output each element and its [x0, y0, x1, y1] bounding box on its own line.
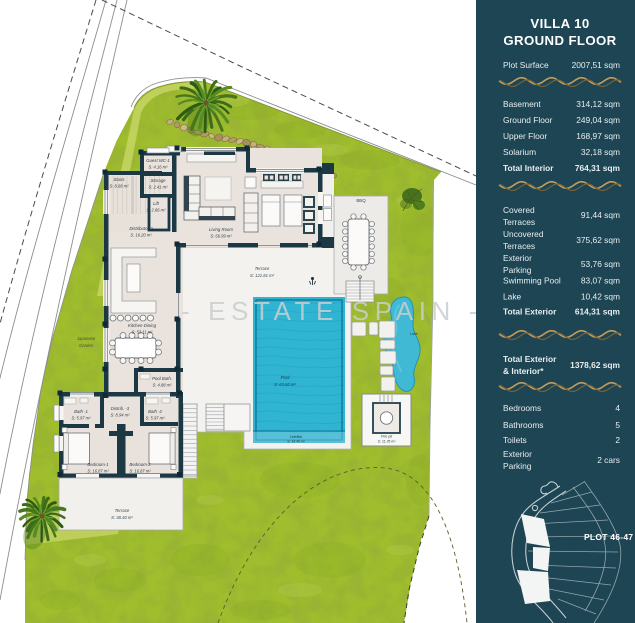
svg-text:VILLA 10: VILLA 10: [530, 16, 589, 31]
svg-text:S: 2.41 m²: S: 2.41 m²: [149, 185, 169, 190]
svg-text:S: 53.11 m²: S: 53.11 m²: [132, 330, 153, 335]
svg-text:Garden: Garden: [79, 343, 94, 348]
svg-text:Parking: Parking: [503, 461, 532, 471]
svg-text:- ESTATE SPAIN -: - ESTATE SPAIN -: [181, 296, 483, 326]
svg-text:168,97 sqm: 168,97 sqm: [576, 131, 620, 141]
svg-text:Toilets: Toilets: [503, 435, 527, 445]
svg-text:BBQ: BBQ: [356, 198, 366, 203]
svg-text:S: 121.81 m²: S: 121.81 m²: [250, 273, 275, 278]
svg-text:S: 5.97 m²: S: 5.97 m²: [146, 416, 166, 421]
svg-text:S: 63.60 m²: S: 63.60 m²: [274, 382, 296, 387]
svg-text:Living Room: Living Room: [209, 227, 233, 232]
svg-text:Bathrooms: Bathrooms: [503, 420, 544, 430]
svg-text:Terrace: Terrace: [255, 266, 270, 271]
svg-text:PLOT 46-47: PLOT 46-47: [584, 532, 633, 542]
svg-text:Bedrooms: Bedrooms: [503, 403, 541, 413]
svg-text:S: 5.97 m²: S: 5.97 m²: [72, 416, 92, 421]
svg-text:Lake: Lake: [503, 292, 522, 302]
svg-text:2 cars: 2 cars: [597, 455, 620, 465]
svg-text:S: 2.86 m²: S: 2.86 m²: [147, 208, 167, 213]
svg-text:Terraces: Terraces: [503, 217, 535, 227]
svg-text:249,04 sqm: 249,04 sqm: [576, 115, 620, 125]
svg-text:Distributor-2: Distributor-2: [129, 226, 153, 231]
svg-text:Total Interior: Total Interior: [503, 163, 554, 173]
svg-text:Bedroom-1: Bedroom-1: [87, 462, 109, 467]
svg-text:4: 4: [615, 403, 620, 413]
svg-text:Plot Surface: Plot Surface: [503, 60, 549, 70]
svg-text:2007,51 sqm: 2007,51 sqm: [572, 60, 620, 70]
svg-text:32,18 sqm: 32,18 sqm: [581, 147, 620, 157]
svg-text:10,42 sqm: 10,42 sqm: [581, 292, 620, 302]
svg-text:Upper Floor: Upper Floor: [503, 131, 547, 141]
svg-text:S: 38.40 m²: S: 38.40 m²: [111, 515, 133, 520]
svg-text:GROUND FLOOR: GROUND FLOOR: [503, 33, 616, 48]
svg-text:Solarium: Solarium: [503, 147, 536, 157]
svg-text:Lift: Lift: [153, 201, 160, 206]
svg-text:764,31 sqm: 764,31 sqm: [575, 163, 620, 173]
svg-text:S: 14.40 m²: S: 14.40 m²: [287, 440, 305, 444]
svg-text:S: 11.35 m²: S: 11.35 m²: [378, 440, 397, 444]
svg-text:Bath -1: Bath -1: [74, 409, 88, 414]
svg-text:375,62 sqm: 375,62 sqm: [576, 235, 620, 245]
svg-text:S: 8.94 m²: S: 8.94 m²: [111, 413, 131, 418]
svg-text:S: 4.88 m²: S: 4.88 m²: [153, 383, 173, 388]
svg-text:Distrib. -3: Distrib. -3: [111, 406, 130, 411]
svg-text:Exterior: Exterior: [503, 253, 532, 263]
svg-text:Terraces: Terraces: [503, 241, 535, 251]
svg-text:53,76 sqm: 53,76 sqm: [581, 259, 620, 269]
svg-text:OdeBar: OdeBar: [290, 435, 303, 439]
svg-text:Uncovered: Uncovered: [503, 229, 544, 239]
svg-text:Lake: Lake: [410, 332, 418, 336]
svg-text:83,07 sqm: 83,07 sqm: [581, 276, 620, 286]
svg-text:Fire pit: Fire pit: [381, 435, 393, 439]
svg-text:S: 8.68 m²: S: 8.68 m²: [110, 184, 130, 189]
svg-text:Ground Floor: Ground Floor: [503, 115, 553, 125]
svg-text:Parking: Parking: [503, 265, 532, 275]
svg-text:S: 66.99 m²: S: 66.99 m²: [210, 234, 232, 239]
svg-text:Pool Bath.: Pool Bath.: [152, 376, 172, 381]
svg-text:Exterior: Exterior: [503, 449, 532, 459]
svg-text:& Interior*: & Interior*: [503, 366, 544, 376]
svg-text:91,44 sqm: 91,44 sqm: [581, 210, 620, 220]
svg-text:5: 5: [615, 420, 620, 430]
svg-text:Terrace: Terrace: [115, 508, 130, 513]
svg-text:Total Exterior: Total Exterior: [503, 307, 557, 317]
svg-text:Japanese: Japanese: [76, 336, 96, 341]
svg-text:Storage: Storage: [150, 178, 166, 183]
svg-text:S: 16.87 m²: S: 16.87 m²: [87, 469, 109, 474]
svg-text:Basement: Basement: [503, 99, 541, 109]
svg-text:Guest WC-1: Guest WC-1: [146, 158, 170, 163]
svg-text:Pool: Pool: [281, 375, 291, 380]
svg-text:Total Exterior: Total Exterior: [503, 354, 557, 364]
svg-text:S: 16.87 m²: S: 16.87 m²: [129, 469, 151, 474]
svg-text:S: 16.20 m²: S: 16.20 m²: [130, 233, 152, 238]
svg-text:Bath -2: Bath -2: [148, 409, 162, 414]
svg-text:314,12 sqm: 314,12 sqm: [576, 99, 620, 109]
svg-text:S: 4.16 m²: S: 4.16 m²: [149, 165, 169, 170]
svg-text:Swimming Pool: Swimming Pool: [503, 276, 561, 286]
svg-text:Kitchen-Dining: Kitchen-Dining: [128, 323, 157, 328]
svg-text:Covered: Covered: [503, 205, 535, 215]
svg-text:614,31 sqm: 614,31 sqm: [575, 307, 620, 317]
svg-text:1378,62 sqm: 1378,62 sqm: [570, 360, 620, 370]
svg-text:Stairs: Stairs: [114, 177, 126, 182]
svg-text:2: 2: [615, 435, 620, 445]
svg-text:Bedroom-2: Bedroom-2: [129, 462, 151, 467]
